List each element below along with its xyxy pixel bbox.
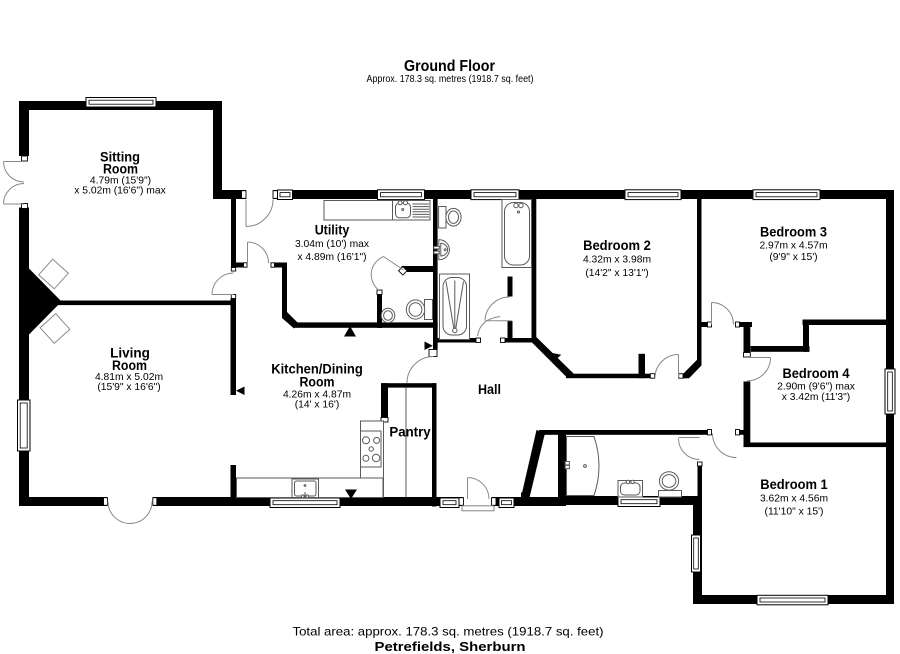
- svg-text:Utility: Utility: [315, 223, 350, 238]
- svg-text:Bedroom 4: Bedroom 4: [783, 366, 850, 381]
- svg-text:(14'2" x 13'1"): (14'2" x 13'1"): [585, 268, 648, 279]
- svg-text:3.04m (10') max: 3.04m (10') max: [295, 239, 370, 250]
- svg-text:Hall: Hall: [478, 382, 501, 397]
- svg-text:Ground Floor: Ground Floor: [404, 58, 495, 75]
- svg-text:4.32m x 3.98m: 4.32m x 3.98m: [583, 255, 651, 266]
- svg-text:Total area: approx. 178.3 sq.: Total area: approx. 178.3 sq. metres (19…: [293, 625, 604, 639]
- svg-text:Room: Room: [112, 358, 147, 373]
- svg-text:Petrefields, Sherburn: Petrefields, Sherburn: [375, 639, 526, 654]
- svg-text:x 5.02m (16'6") max: x 5.02m (16'6") max: [74, 186, 166, 197]
- svg-text:x 3.42m (11'3"): x 3.42m (11'3"): [782, 392, 850, 403]
- svg-text:2.97m x 4.57m: 2.97m x 4.57m: [759, 241, 827, 252]
- svg-text:Bedroom 1: Bedroom 1: [760, 477, 828, 492]
- svg-text:(11'10" x 15'): (11'10" x 15'): [765, 507, 824, 518]
- svg-text:(15'9" x 16'6"): (15'9" x 16'6"): [97, 382, 160, 393]
- svg-text:(14' x 16'): (14' x 16'): [295, 400, 340, 411]
- svg-text:2.90m (9'6") max: 2.90m (9'6") max: [777, 382, 856, 393]
- svg-text:Approx. 178.3 sq. metres (1918: Approx. 178.3 sq. metres (1918.7 sq. fee…: [367, 74, 534, 85]
- svg-text:Room: Room: [103, 162, 138, 177]
- svg-text:x 4.89m (16'1"): x 4.89m (16'1"): [297, 252, 366, 263]
- svg-text:Bedroom 2: Bedroom 2: [583, 238, 651, 253]
- svg-text:Room: Room: [300, 375, 335, 390]
- svg-text:Pantry: Pantry: [389, 424, 431, 439]
- svg-text:(9'9" x 15'): (9'9" x 15'): [769, 252, 817, 263]
- svg-text:Bedroom 3: Bedroom 3: [760, 225, 827, 240]
- svg-text:3.62m x 4.56m: 3.62m x 4.56m: [760, 494, 828, 505]
